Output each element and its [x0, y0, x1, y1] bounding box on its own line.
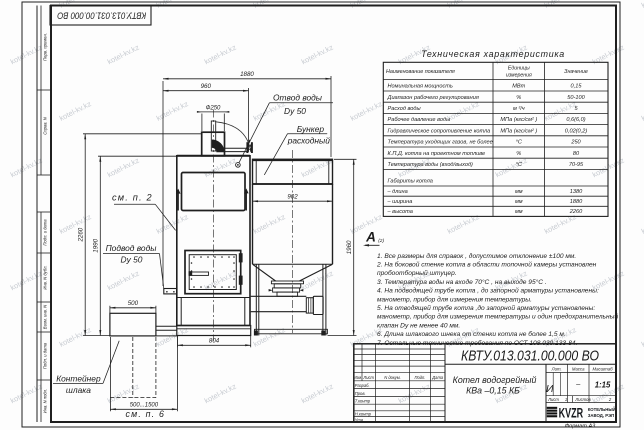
svg-text:Инв. N подл.: Инв. N подл. — [43, 389, 48, 413]
svg-text:манометр, прибор для измерения: манометр, прибор для измерения температу… — [377, 313, 618, 321]
svg-text:5. На отводящей трубе котла ,: 5. На отводящей трубе котла ,до запорной… — [377, 304, 595, 312]
svg-text:960: 960 — [201, 83, 212, 90]
svg-text:МВт: МВт — [512, 84, 525, 90]
svg-text:Изм.: Изм. — [354, 375, 363, 380]
svg-text:2. На боковой стенке котла в: 2. На боковой стенке котла в области топ… — [376, 261, 597, 269]
svg-text:70-95: 70-95 — [569, 162, 584, 168]
svg-text:%: % — [516, 95, 521, 101]
svg-text:Перв. примен.: Перв. примен. — [43, 33, 48, 61]
svg-text:Подвод воды: Подвод воды — [106, 243, 157, 253]
svg-text:500...1500: 500...1500 — [130, 403, 159, 409]
svg-text:клапан Dу не менее 40 мм.: клапан Dу не менее 40 мм. — [377, 322, 460, 329]
svg-text:мм: мм — [515, 189, 523, 195]
svg-text:3. Температура воды на входе: 3. Температура воды на входе 70°С , на в… — [377, 278, 547, 286]
svg-text:KVZR: KVZR — [559, 405, 584, 420]
svg-text:1960: 1960 — [346, 240, 353, 254]
svg-text:И: И — [546, 383, 554, 395]
svg-text:804: 804 — [209, 338, 220, 345]
svg-text:0,6(6,0): 0,6(6,0) — [566, 117, 585, 123]
svg-text:Дата: Дата — [431, 375, 444, 380]
svg-text:Контейнер: Контейнер — [56, 373, 101, 383]
svg-text:Разраб.: Разраб. — [355, 383, 370, 388]
svg-text:4. На подводящей трубе котла: 4. На подводящей трубе котла , до запорн… — [377, 287, 599, 295]
svg-text:(2): (2) — [378, 238, 384, 244]
svg-text:Лист: Лист — [362, 375, 374, 380]
svg-text:Котел водогрейный: Котел водогрейный — [453, 375, 537, 385]
svg-text:%: % — [516, 151, 521, 157]
svg-text:Масштаб: Масштаб — [592, 367, 613, 372]
svg-text:измерения: измерения — [506, 73, 532, 79]
svg-text:Инв. N дубл.: Инв. N дубл. — [43, 265, 48, 289]
svg-text:Dy 50: Dy 50 — [284, 106, 306, 116]
svg-text:Ф250: Ф250 — [206, 105, 221, 111]
svg-text:МПа (кгс/см² ): МПа (кгс/см² ) — [500, 117, 537, 123]
svg-text:КВТУ.013.031.00.000 ВО: КВТУ.013.031.00.000 ВО — [461, 348, 599, 364]
svg-text:КВТУ.013.031.00.000 ВО: КВТУ.013.031.00.000 ВО — [57, 11, 146, 21]
svg-text:Н.контр: Н.контр — [355, 412, 372, 417]
svg-text:Листов: Листов — [574, 397, 591, 402]
svg-text:– длина: – длина — [387, 189, 408, 195]
svg-text:м ³/ч: м ³/ч — [513, 106, 525, 112]
svg-text:манометр, прибор для измерения: манометр, прибор для измерения температу… — [377, 295, 532, 303]
svg-text:Справ. N: Справ. N — [43, 116, 48, 134]
svg-text:Лист: Лист — [547, 397, 559, 402]
svg-text:Подп. и дата: Подп. и дата — [43, 342, 48, 369]
svg-text:мм: мм — [515, 209, 523, 215]
svg-text:Т.контр: Т.контр — [355, 399, 371, 404]
svg-text:шлака: шлака — [66, 385, 91, 395]
svg-text:Бункер: Бункер — [297, 124, 325, 134]
svg-text:Наименование показателя: Наименование показателя — [386, 69, 455, 75]
svg-text:пробоотборный штуцер.: пробоотборный штуцер. — [377, 269, 457, 277]
svg-text:Температура уходящих газов, не: Температура уходящих газов, не более — [388, 140, 493, 146]
svg-text:КВа –0,15 КБ: КВа –0,15 КБ — [466, 385, 520, 395]
svg-text:расходный: расходный — [287, 136, 330, 146]
svg-text:Значение: Значение — [564, 69, 588, 75]
svg-text:Рабочее давление воды: Рабочее давление воды — [388, 117, 451, 123]
svg-text:500: 500 — [128, 300, 139, 307]
svg-text:Подп. и дата: Подп. и дата — [43, 219, 48, 246]
svg-text:902: 902 — [287, 194, 298, 201]
svg-text:Температура воды (вход/выход): Температура воды (вход/выход) — [388, 162, 474, 168]
svg-text:Единицы: Единицы — [508, 66, 530, 72]
svg-text:Пров.: Пров. — [355, 391, 366, 396]
svg-text:1880: 1880 — [240, 71, 254, 78]
svg-text:– высота: – высота — [387, 209, 413, 215]
svg-text:1880: 1880 — [570, 199, 583, 205]
svg-text:Масса: Масса — [572, 367, 585, 372]
svg-text:Диапазон рабочего регулировани: Диапазон рабочего регулирования — [387, 95, 479, 101]
svg-text:Взам. инв. N: Взам. инв. N — [43, 304, 48, 329]
svg-text:°С: °С — [516, 140, 523, 146]
svg-text:Лит.: Лит. — [551, 367, 562, 372]
svg-text:1:15: 1:15 — [595, 381, 611, 390]
svg-text:–: – — [575, 379, 581, 388]
svg-text:°С: °С — [516, 162, 523, 168]
svg-text:1. Все размеры для справок ,: 1. Все размеры для справок , допустимое … — [377, 252, 576, 260]
svg-text:80: 80 — [573, 151, 580, 157]
svg-text:1380: 1380 — [570, 189, 583, 195]
svg-text:2260: 2260 — [569, 209, 583, 215]
svg-text:6. Длина шлакового шнека от с: 6. Длина шлакового шнека от стенки котла… — [377, 330, 566, 338]
svg-text:ЗАВОД, РЭП: ЗАВОД, РЭП — [588, 413, 615, 418]
svg-text:МПа (кгс/см² ): МПа (кгс/см² ) — [500, 128, 537, 134]
svg-text:Отвод воды: Отвод воды — [273, 93, 322, 103]
svg-text:Номинальная мощность: Номинальная мощность — [388, 84, 453, 90]
svg-text:Утв.: Утв. — [355, 417, 364, 422]
svg-text:N докум.: N докум. — [384, 375, 401, 380]
svg-text:2260: 2260 — [78, 227, 85, 242]
svg-text:КОТЕЛЬНЫЙ: КОТЕЛЬНЫЙ — [588, 407, 616, 412]
svg-text:7. Остальные технические треб: 7. Остальные технические требования по О… — [377, 339, 578, 347]
svg-text:Гидравлическое сопротивление к: Гидравлическое сопротивление котла — [388, 128, 491, 134]
svg-text:Dy 50: Dy 50 — [121, 254, 143, 264]
svg-text:0,02(0,2): 0,02(0,2) — [565, 128, 588, 134]
svg-text:см. п. 2: см. п. 2 — [112, 193, 153, 203]
svg-text:Расход воды: Расход воды — [388, 106, 421, 112]
svg-text:А: А — [365, 229, 376, 244]
svg-text:1990: 1990 — [93, 238, 100, 252]
svg-text:– ширина: – ширина — [387, 199, 413, 205]
svg-text:0,15: 0,15 — [571, 84, 583, 90]
svg-text:Техническая характеристика: Техническая характеристика — [421, 49, 565, 59]
svg-text:К.П.Д. котла на проектном топл: К.П.Д. котла на проектном топливе — [388, 151, 486, 157]
svg-text:Подп.: Подп. — [415, 375, 426, 380]
svg-text:50-100: 50-100 — [567, 95, 585, 101]
svg-text:250: 250 — [570, 140, 581, 146]
svg-text:см. п. 6: см. п. 6 — [126, 409, 166, 419]
svg-text:мм: мм — [515, 199, 523, 205]
svg-text:1: 1 — [565, 397, 567, 402]
svg-text:Формат А3: Формат А3 — [565, 424, 596, 430]
svg-text:Габариты котла: Габариты котла — [388, 179, 433, 185]
